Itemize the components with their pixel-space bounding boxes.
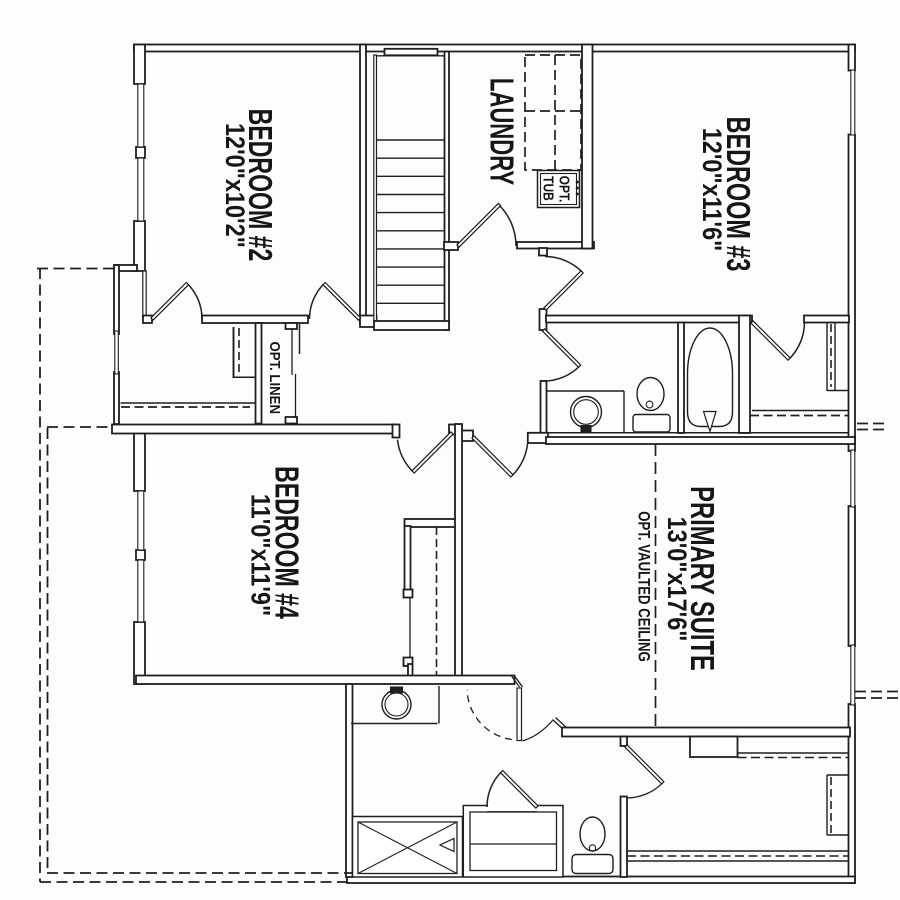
svg-text:TUB: TUB xyxy=(540,176,557,201)
svg-text:OPT. LINEN: OPT. LINEN xyxy=(267,341,284,414)
svg-text:OPT. VAULTED CEILING: OPT. VAULTED CEILING xyxy=(634,511,653,662)
svg-text:11'0"x11'9": 11'0"x11'9" xyxy=(245,494,275,616)
svg-text:13'0"x17'6": 13'0"x17'6" xyxy=(662,517,692,642)
svg-text:12'0"x11'6": 12'0"x11'6" xyxy=(697,128,727,252)
svg-text:12'0"x10'2": 12'0"x10'2" xyxy=(220,123,250,248)
svg-text:OPT.: OPT. xyxy=(556,176,573,203)
svg-text:LAUNDRY: LAUNDRY xyxy=(483,78,519,185)
